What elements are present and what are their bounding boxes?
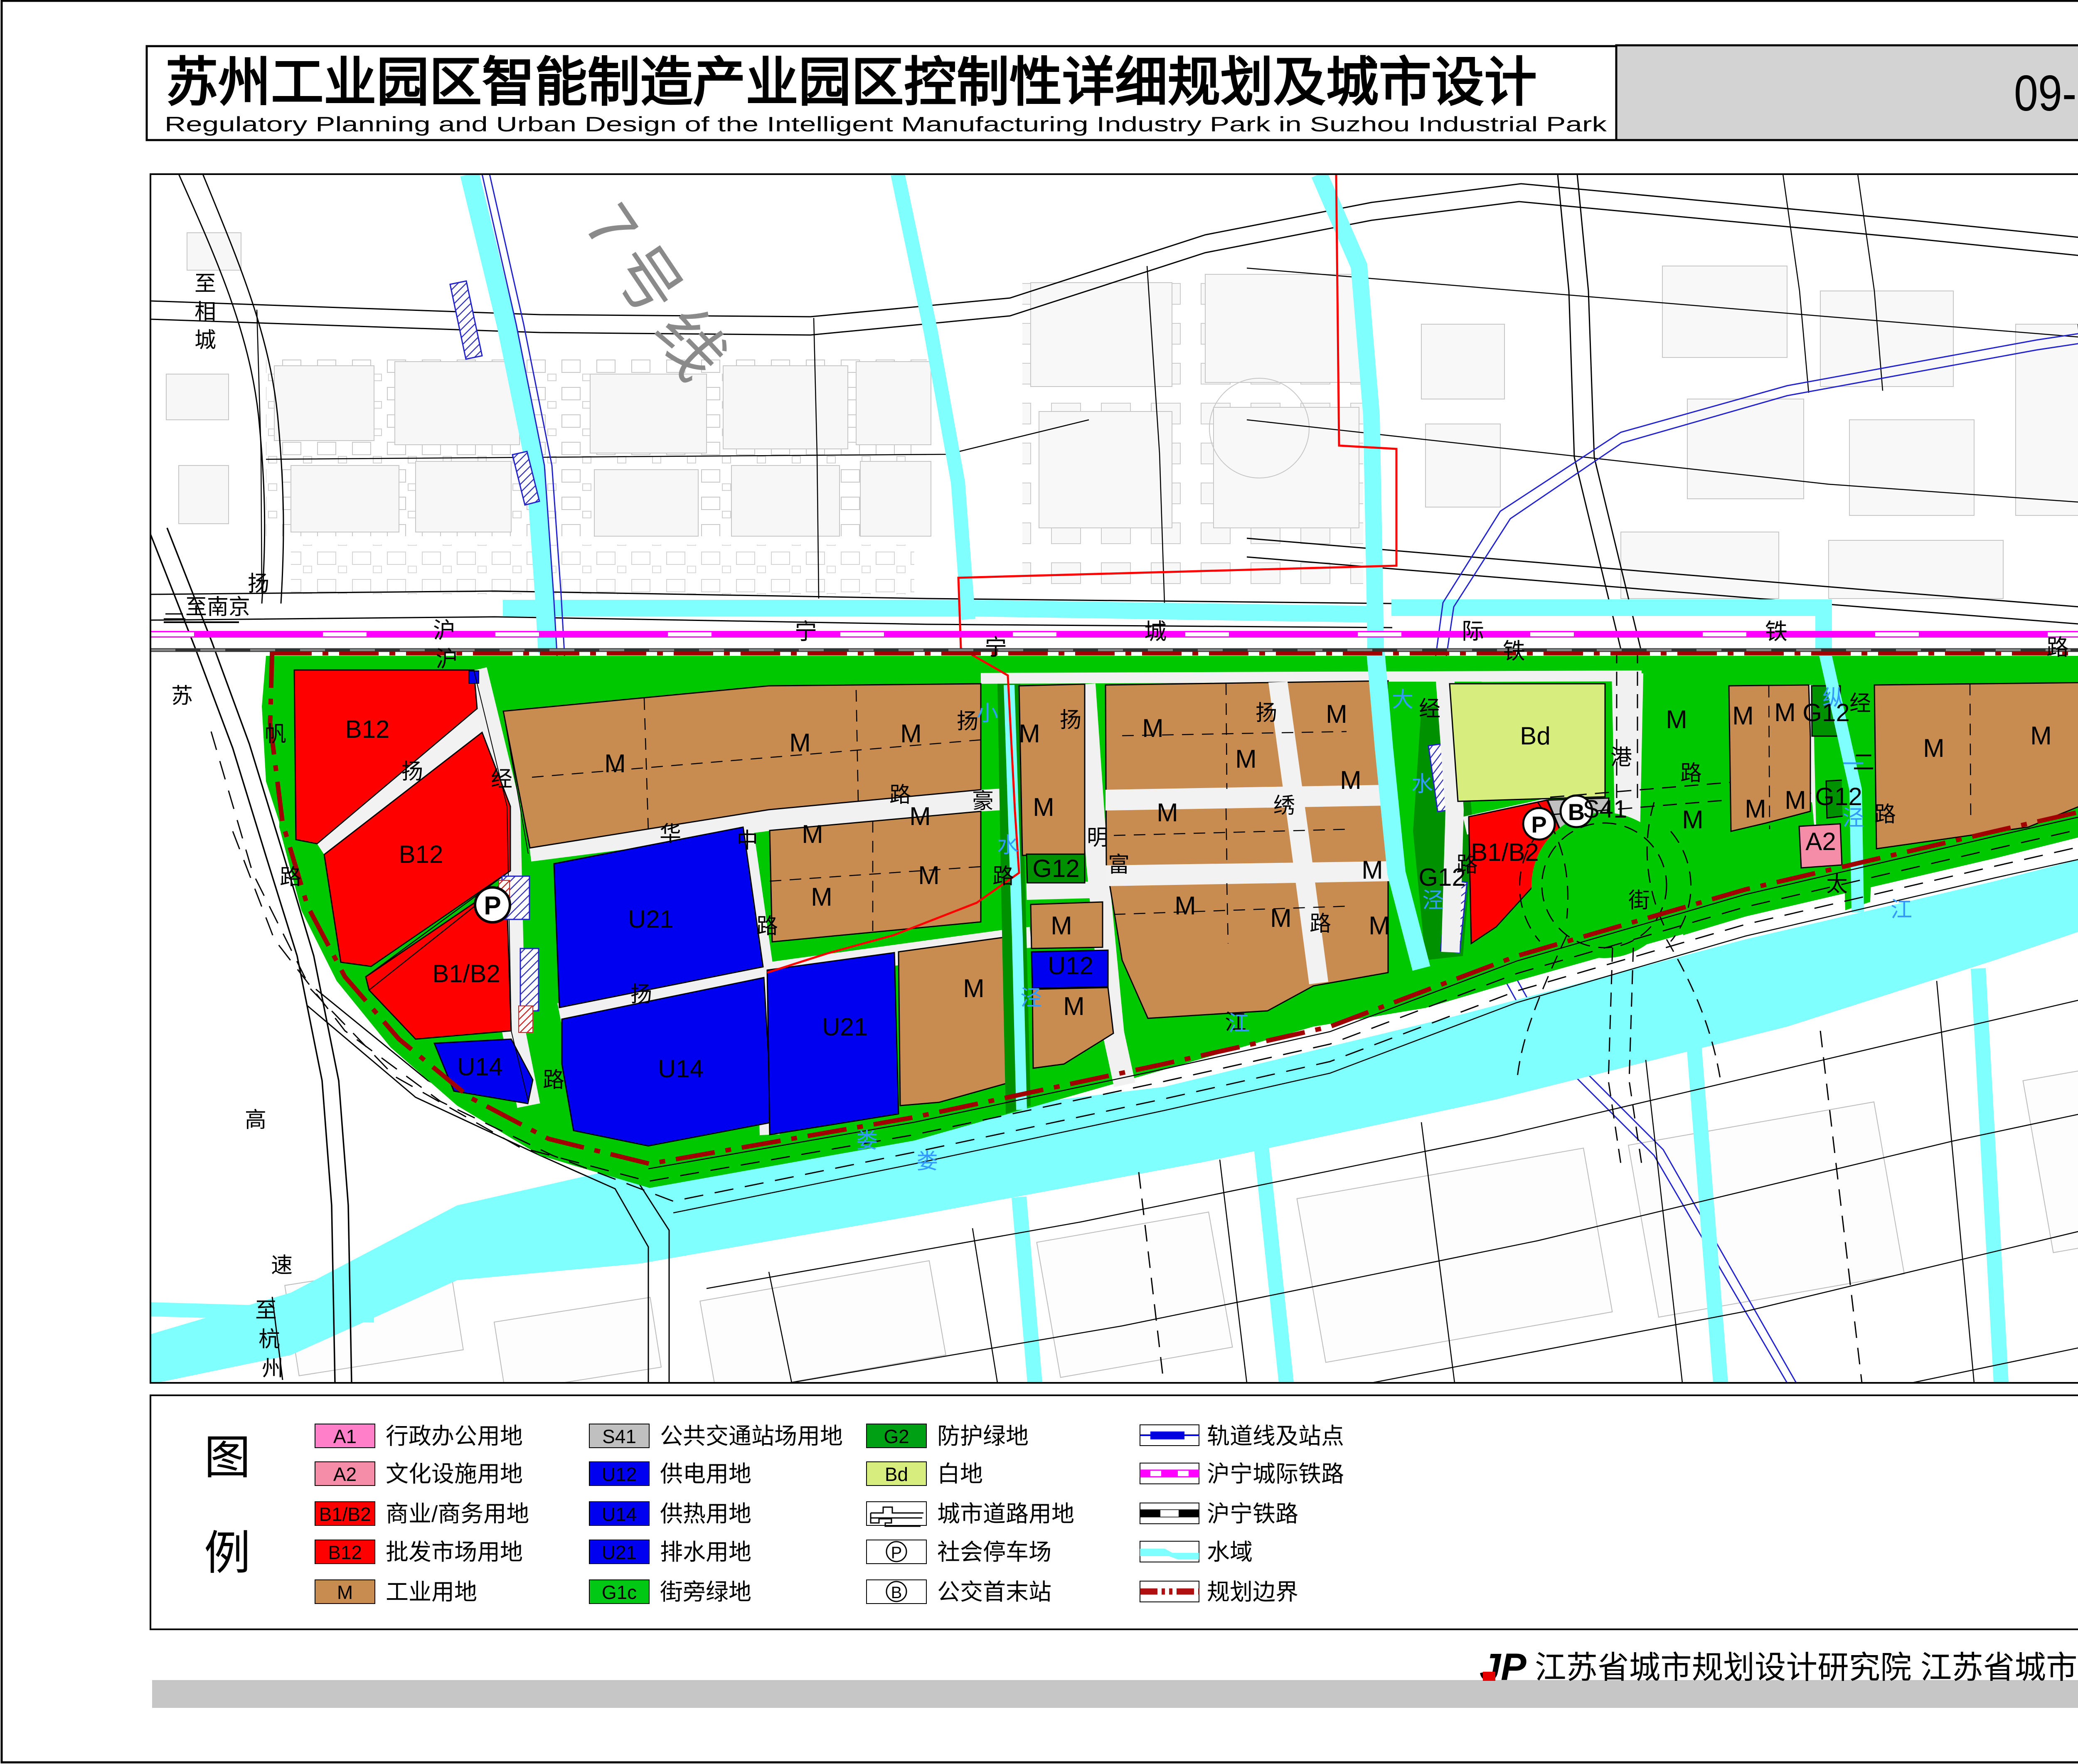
svg-text:JP: JP (1480, 1646, 1526, 1688)
svg-text:沪宁城际铁路: 沪宁城际铁路 (1207, 1461, 1344, 1487)
svg-text:小: 小 (977, 702, 998, 726)
svg-text:U12: U12 (602, 1463, 637, 1485)
svg-text:G12: G12 (1802, 699, 1849, 727)
svg-text:江: 江 (1891, 898, 1912, 922)
svg-text:U21: U21 (602, 1542, 637, 1563)
svg-text:G2: G2 (884, 1426, 909, 1447)
svg-text:M: M (909, 802, 931, 831)
svg-text:际: 际 (1462, 619, 1484, 644)
svg-text:P: P (1531, 811, 1546, 838)
svg-text:绣: 绣 (1273, 794, 1295, 818)
svg-text:街旁绿地: 街旁绿地 (660, 1579, 751, 1605)
svg-text:09-土地利用规划图: 09-土地利用规划图 (2014, 65, 2078, 121)
svg-text:G12: G12 (1418, 863, 1465, 891)
svg-text:至: 至 (195, 272, 216, 296)
svg-text:豪: 豪 (972, 789, 994, 813)
svg-text:路: 路 (543, 1068, 564, 1092)
svg-text:文化设施用地: 文化设施用地 (386, 1461, 523, 1487)
svg-text:M: M (1666, 705, 1687, 734)
svg-text:路: 路 (1310, 912, 1331, 936)
svg-text:M: M (1923, 734, 1945, 763)
svg-text:M: M (1019, 719, 1040, 748)
svg-text:扬: 扬 (248, 572, 269, 596)
svg-text:商业/商务用地: 商业/商务用地 (386, 1501, 529, 1527)
svg-text:宁: 宁 (795, 619, 817, 644)
svg-text:娄: 娄 (916, 1150, 938, 1174)
svg-text:水: 水 (1411, 772, 1433, 796)
svg-text:明: 明 (1087, 826, 1108, 850)
svg-text:港: 港 (1610, 746, 1632, 770)
svg-text:规划边界: 规划边界 (1207, 1579, 1298, 1605)
svg-text:Regulatory Planning and Urban: Regulatory Planning and Urban Design of … (165, 113, 1607, 136)
svg-text:路: 路 (280, 865, 301, 889)
svg-text:U14: U14 (457, 1053, 503, 1081)
svg-text:B1/B2: B1/B2 (1471, 838, 1539, 866)
svg-text:太: 太 (1826, 872, 1848, 897)
svg-text:铁: 铁 (1765, 619, 1787, 644)
svg-text:苏: 苏 (171, 684, 193, 708)
svg-text:M: M (1745, 795, 1766, 823)
svg-text:M: M (1732, 702, 1754, 730)
svg-text:富: 富 (1108, 853, 1130, 877)
svg-text:Bd: Bd (1520, 722, 1550, 750)
svg-text:供电用地: 供电用地 (660, 1461, 751, 1487)
svg-text:M: M (1157, 798, 1178, 827)
svg-text:中: 中 (736, 829, 758, 853)
svg-text:路: 路 (1680, 761, 1702, 786)
svg-text:M: M (1142, 714, 1164, 743)
svg-text:一: 一 (1842, 753, 1864, 777)
svg-text:S41: S41 (1583, 795, 1627, 823)
svg-text:M: M (1369, 912, 1390, 940)
svg-text:街: 街 (1628, 889, 1650, 913)
svg-text:U21: U21 (628, 905, 674, 933)
svg-text:A2: A2 (333, 1463, 357, 1485)
svg-text:M: M (811, 883, 832, 912)
svg-text:路: 路 (1874, 803, 1896, 827)
svg-text:P: P (891, 1544, 902, 1562)
svg-text:U14: U14 (658, 1055, 704, 1083)
svg-text:江: 江 (1228, 1012, 1250, 1036)
svg-text:江苏省城市规划设计研究院 江苏省城市交通规划研究中心: 江苏省城市规划设计研究院 江苏省城市交通规划研究中心 (1535, 1650, 2078, 1685)
svg-text:泾: 泾 (1020, 986, 1042, 1010)
svg-text:M: M (1326, 700, 1347, 729)
svg-text:大: 大 (1392, 688, 1413, 712)
svg-text:公交首末站: 公交首末站 (937, 1579, 1051, 1605)
svg-text:P: P (484, 892, 501, 920)
svg-text:批发市场用地: 批发市场用地 (386, 1539, 523, 1565)
svg-text:M: M (1682, 806, 1704, 834)
svg-text:苏州工业园区智能制造产业园区控制性详细规划及城市设计: 苏州工业园区智能制造产业园区控制性详细规划及城市设计 (165, 53, 1537, 112)
svg-text:M: M (1785, 786, 1806, 815)
svg-text:至: 至 (255, 1298, 277, 1323)
svg-text:M: M (2030, 722, 2052, 750)
svg-text:S41: S41 (602, 1426, 636, 1447)
svg-text:公共交通站场用地: 公共交通站场用地 (660, 1423, 843, 1449)
svg-text:铁: 铁 (1503, 639, 1525, 664)
svg-text:轨道线及站点: 轨道线及站点 (1207, 1423, 1344, 1449)
svg-text:城: 城 (1144, 619, 1167, 644)
svg-text:扬: 扬 (630, 983, 652, 1007)
svg-text:沪宁铁路: 沪宁铁路 (1207, 1501, 1298, 1527)
svg-text:路: 路 (889, 783, 911, 807)
svg-text:扬: 扬 (401, 760, 423, 784)
svg-text:M: M (963, 974, 985, 1003)
svg-text:宁: 宁 (985, 635, 1007, 660)
svg-text:M: M (789, 729, 811, 757)
svg-text:泾: 泾 (1422, 889, 1444, 913)
svg-text:M: M (918, 861, 940, 890)
svg-text:供热用地: 供热用地 (660, 1501, 751, 1527)
svg-text:杭: 杭 (259, 1328, 280, 1352)
svg-text:路: 路 (2046, 635, 2069, 660)
svg-text:B: B (891, 1584, 902, 1602)
svg-text:路: 路 (992, 865, 1014, 889)
svg-text:扬: 扬 (1256, 701, 1277, 725)
svg-text:M: M (802, 820, 823, 849)
svg-text:经: 经 (1419, 697, 1440, 721)
svg-text:A1: A1 (333, 1426, 357, 1447)
svg-text:U21: U21 (822, 1013, 868, 1041)
svg-text:B: B (1568, 799, 1585, 825)
svg-text:经: 经 (491, 767, 512, 791)
svg-text:速: 速 (271, 1254, 293, 1278)
svg-text:沪: 沪 (433, 618, 455, 643)
svg-text:B12: B12 (328, 1542, 362, 1563)
svg-text:水: 水 (997, 833, 1019, 857)
svg-text:M: M (1340, 766, 1362, 795)
svg-text:相: 相 (195, 300, 216, 324)
svg-text:帆: 帆 (265, 722, 286, 746)
svg-text:G12: G12 (1815, 783, 1862, 811)
svg-text:水域: 水域 (1207, 1539, 1253, 1565)
svg-text:扬: 扬 (957, 710, 978, 734)
svg-text:B12: B12 (399, 840, 443, 868)
svg-text:白地: 白地 (937, 1461, 983, 1487)
svg-text:行政办公用地: 行政办公用地 (386, 1423, 523, 1449)
svg-text:G1c: G1c (602, 1582, 637, 1603)
svg-text:娄: 娄 (856, 1129, 878, 1153)
svg-text:例: 例 (204, 1527, 251, 1579)
svg-text:至南京: 至南京 (185, 595, 250, 619)
svg-text:Bd: Bd (885, 1463, 908, 1485)
svg-text:A2: A2 (1805, 828, 1836, 855)
svg-text:州: 州 (262, 1357, 283, 1381)
svg-text:B1/B2: B1/B2 (319, 1503, 371, 1525)
svg-text:高: 高 (245, 1108, 266, 1132)
svg-text:防护绿地: 防护绿地 (937, 1423, 1029, 1449)
svg-text:M: M (1235, 745, 1257, 774)
svg-text:B12: B12 (345, 715, 390, 743)
svg-text:G12: G12 (1032, 855, 1079, 882)
svg-text:U12: U12 (1048, 952, 1093, 980)
svg-text:社会停车场: 社会停车场 (937, 1539, 1051, 1565)
svg-text:M: M (1270, 904, 1292, 933)
svg-text:华: 华 (660, 822, 681, 846)
svg-text:U14: U14 (602, 1503, 637, 1525)
svg-text:M: M (1051, 912, 1072, 940)
svg-text:城市道路用地: 城市道路用地 (937, 1501, 1074, 1527)
svg-text:沪: 沪 (436, 647, 458, 672)
svg-text:扬: 扬 (1060, 708, 1081, 732)
svg-text:M: M (900, 719, 922, 748)
svg-text:M: M (1362, 856, 1383, 884)
svg-text:M: M (1174, 892, 1196, 920)
svg-text:M: M (1063, 992, 1085, 1021)
svg-text:M: M (1033, 793, 1054, 822)
svg-text:城: 城 (195, 328, 216, 352)
svg-text:工业用地: 工业用地 (386, 1579, 477, 1605)
svg-text:M: M (337, 1582, 353, 1603)
svg-text:排水用地: 排水用地 (660, 1539, 751, 1565)
svg-text:M: M (604, 749, 626, 778)
svg-text:经: 经 (1849, 692, 1871, 716)
svg-text:M: M (1774, 698, 1796, 727)
svg-text:B1/B2: B1/B2 (432, 960, 500, 988)
svg-text:路: 路 (756, 914, 778, 939)
svg-text:图: 图 (204, 1431, 251, 1483)
